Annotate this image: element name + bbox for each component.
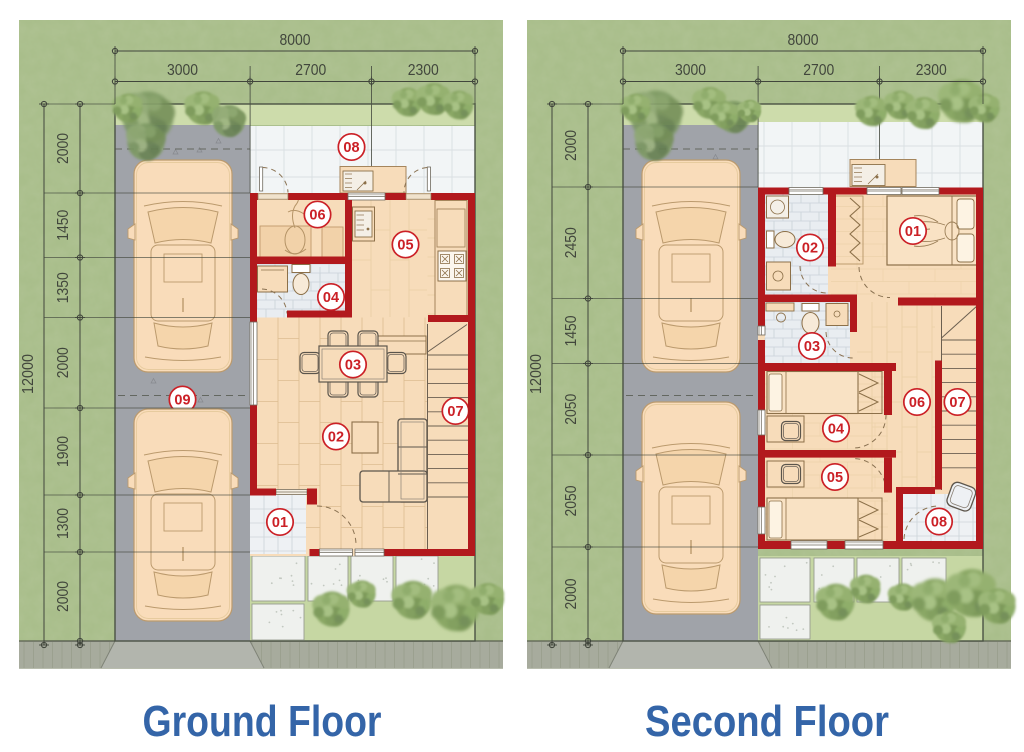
svg-text:07: 07: [447, 404, 463, 420]
svg-text:Second Floor: Second Floor: [645, 697, 889, 746]
svg-text:8000: 8000: [788, 32, 819, 49]
svg-text:01: 01: [272, 515, 288, 531]
svg-text:06: 06: [909, 395, 925, 411]
svg-text:03: 03: [345, 358, 361, 374]
svg-text:8000: 8000: [280, 32, 311, 49]
svg-text:2000: 2000: [55, 347, 72, 378]
svg-text:01: 01: [905, 224, 921, 240]
svg-text:04: 04: [323, 290, 339, 306]
svg-text:2700: 2700: [295, 62, 326, 79]
svg-text:3000: 3000: [167, 62, 198, 79]
svg-text:05: 05: [397, 238, 413, 254]
svg-text:2050: 2050: [563, 394, 580, 425]
svg-text:2050: 2050: [563, 485, 580, 516]
svg-text:12000: 12000: [20, 354, 37, 394]
svg-text:3000: 3000: [675, 62, 706, 79]
svg-text:05: 05: [827, 470, 843, 486]
svg-text:08: 08: [931, 515, 947, 531]
svg-text:02: 02: [328, 430, 344, 446]
svg-text:07: 07: [949, 395, 965, 411]
svg-text:08: 08: [343, 140, 359, 156]
svg-text:2700: 2700: [803, 62, 834, 79]
svg-text:2300: 2300: [408, 62, 439, 79]
svg-text:2450: 2450: [563, 227, 580, 258]
svg-text:2000: 2000: [563, 578, 580, 609]
svg-text:03: 03: [804, 339, 820, 355]
svg-text:1450: 1450: [563, 315, 580, 346]
svg-text:04: 04: [828, 422, 844, 438]
svg-text:12000: 12000: [528, 354, 545, 394]
svg-text:Ground Floor: Ground Floor: [143, 697, 382, 746]
svg-text:02: 02: [802, 241, 818, 257]
svg-text:1450: 1450: [55, 210, 72, 241]
svg-text:2000: 2000: [55, 133, 72, 164]
svg-text:06: 06: [309, 208, 325, 224]
svg-text:1350: 1350: [55, 272, 72, 303]
svg-text:1900: 1900: [55, 436, 72, 467]
svg-text:2300: 2300: [916, 62, 947, 79]
svg-text:2000: 2000: [55, 581, 72, 612]
svg-text:09: 09: [174, 393, 190, 409]
svg-text:1300: 1300: [55, 508, 72, 539]
svg-text:2000: 2000: [563, 130, 580, 161]
